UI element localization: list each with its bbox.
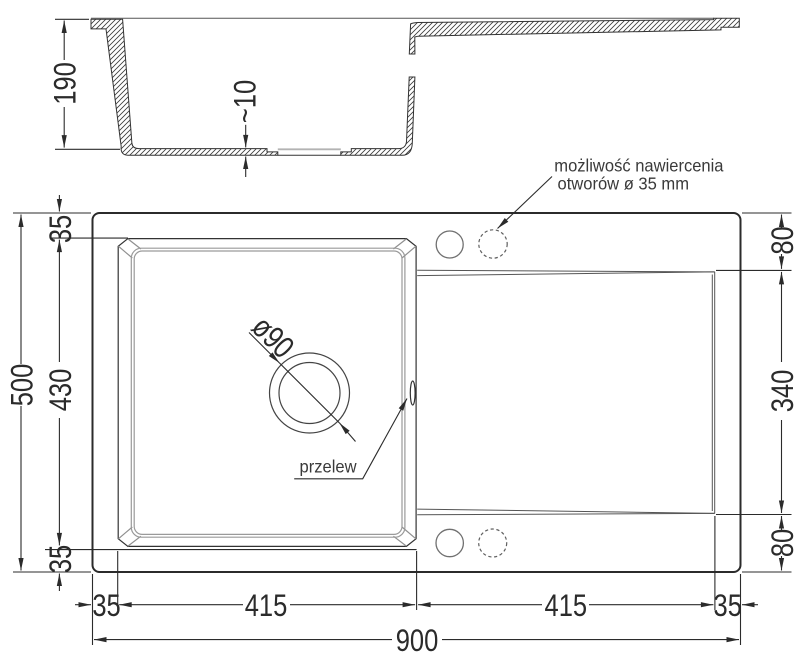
svg-text:otworów ø 35 mm: otworów ø 35 mm [558,173,689,194]
svg-text:35: 35 [44,545,79,573]
svg-text:430: 430 [44,369,79,412]
svg-text:35: 35 [714,589,742,624]
svg-text:35: 35 [92,589,120,624]
svg-text:415: 415 [245,589,288,624]
svg-text:przelew: przelew [300,456,358,477]
svg-text:415: 415 [545,589,588,624]
svg-text:340: 340 [766,370,800,413]
svg-text:190: 190 [48,62,83,105]
svg-text:80: 80 [766,529,800,557]
svg-text:35: 35 [44,215,79,243]
svg-text:500: 500 [5,364,40,407]
svg-text:900: 900 [396,624,439,653]
svg-text:~10: ~10 [228,80,263,123]
svg-text:80: 80 [766,226,800,254]
